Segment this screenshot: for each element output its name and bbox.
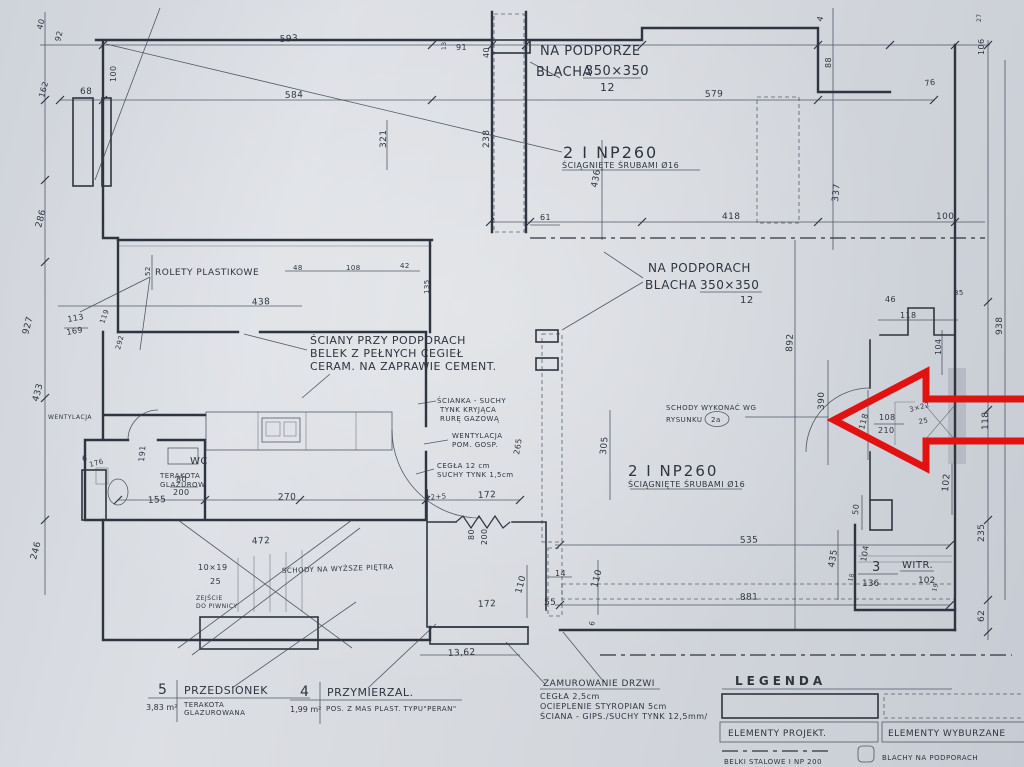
- dimension-label: 927: [21, 315, 35, 335]
- room-witryna-area: 136: [862, 579, 879, 589]
- dimension-label: 270: [278, 492, 297, 503]
- dimension-label: 68: [80, 87, 92, 97]
- legend-projected-label: ELEMENTY PROJEKT.: [728, 729, 827, 739]
- dimension-label: 162: [37, 80, 50, 98]
- legend-plate-symbol: [858, 746, 874, 762]
- legend-beams-label: BELKI STALOWE I NP 200: [724, 758, 822, 766]
- dimension-label: 52: [144, 266, 152, 276]
- note-scianka: RURĘ GAZOWĄ: [440, 415, 499, 423]
- dimension-label: 35: [954, 289, 964, 297]
- dimension-label: 108: [346, 264, 361, 272]
- note-na-podporze: NA PODPORZE: [540, 44, 641, 59]
- dimension-label: 390: [817, 392, 827, 410]
- dimension-label: 176: [88, 457, 104, 469]
- dimension-label: 80: [467, 529, 476, 540]
- dimension-label: 292: [114, 334, 125, 350]
- dimension-label: 235: [977, 524, 987, 542]
- dimension-label: 106: [977, 39, 986, 55]
- note-scianka: TYNK KRYJĄCA: [439, 406, 496, 414]
- dimension-label: 535: [740, 535, 759, 546]
- note-wentylacja-left: WENTYLACJA: [48, 414, 92, 421]
- dimension-label: 91: [456, 43, 467, 52]
- dimension-label: 13: [441, 42, 448, 50]
- note-stopnie: 25: [210, 577, 221, 586]
- dimension-label: 246: [29, 540, 43, 560]
- dimension-label: 265: [512, 438, 524, 456]
- dimension-label: 48: [293, 264, 303, 272]
- dimension-label: 62: [977, 610, 987, 622]
- dimension-label: 14: [555, 569, 566, 578]
- note-sciany: BELEK Z PEŁNYCH CEGIEŁ: [310, 347, 464, 360]
- dimension-label: 104: [859, 545, 871, 563]
- note-schody-wykonac: RYSUNKU: [666, 416, 703, 424]
- room-przedsionek-name: PRZEDSIONEK: [184, 684, 268, 697]
- room-witryna-dim: 102: [918, 576, 935, 586]
- dimension-label: 88: [824, 57, 833, 68]
- note-schody-pietra: SCHODY NA WYŻSZE PIĘTRA: [282, 562, 394, 575]
- note-zejscie: DO PIWNICY: [196, 603, 238, 610]
- dimension-label: 61: [540, 213, 551, 222]
- dimension-label: 155: [148, 495, 167, 506]
- note-na-podporach: BLACHA: [645, 278, 697, 292]
- note-scianka: ŚCIANKA - SUCHY: [437, 396, 506, 405]
- note-schody-wykonac: SCHODY WYKONAĆ WG: [666, 403, 756, 412]
- note-na-podporze: 12: [600, 81, 615, 94]
- dimension-label: 110: [514, 574, 528, 594]
- note-na-podporze: 350×350: [585, 64, 649, 79]
- dimension-label: 169: [66, 325, 84, 337]
- dimension-label: 12+5: [425, 492, 446, 502]
- dimension-lines-layer: [40, 8, 1005, 724]
- door-arcs-layer: [128, 388, 955, 518]
- note-na-podporach: 12: [740, 295, 754, 306]
- note-wentylacja-pom: POM. GOSP.: [452, 441, 498, 449]
- dimension-label: 76: [924, 78, 936, 88]
- dimension-label: 892: [785, 333, 796, 352]
- walls-layer: [85, 12, 955, 640]
- dimension-label: 436: [590, 169, 603, 189]
- dimension-label: 55: [544, 598, 556, 608]
- room-witryna-number: 3: [872, 560, 880, 575]
- dimension-label: 25: [918, 416, 929, 426]
- room-przedsionek-finish: GLAZUROWANA: [184, 709, 245, 717]
- dimension-label: 104: [934, 339, 943, 355]
- note-zamurowanie: ŚCIANA - GIPS./SUCHY TYNK 12,5mm/: [540, 710, 708, 721]
- note-zamurowanie: ZAMUROWANIE DRZWI: [543, 679, 655, 689]
- dimension-label: 40: [482, 47, 491, 58]
- note-zejscie: ZEJŚCIE: [196, 595, 223, 602]
- dimension-label: 200: [173, 488, 189, 497]
- legend: LEGENDA ELEMENTY PROJEKT. ELEMENTY WYBUR…: [720, 674, 1024, 766]
- legend-swatch-demolished: [884, 694, 1024, 718]
- dimension-label: 4: [815, 15, 825, 23]
- note-rolety: ROLETY PLASTIKOWE: [155, 268, 259, 278]
- dimension-label: 119: [98, 308, 110, 324]
- room-przymierzalnia-area: 1,99 m²: [290, 705, 321, 714]
- note-sciany: CERAM. NA ZAPRAWIE CEMENT.: [310, 360, 497, 373]
- room-przymierzalnia-number: 4: [300, 684, 309, 700]
- dimension-label: 938: [995, 317, 1005, 335]
- dimension-label: 102: [941, 473, 953, 492]
- dimension-label: 418: [722, 212, 740, 222]
- dimension-label: 593: [280, 34, 299, 45]
- dimension-label: 135: [423, 279, 431, 294]
- dimension-label: 46: [885, 295, 896, 304]
- note-zamurowanie: OCIEPLENIE STYROPIAN 5cm: [540, 702, 667, 711]
- dimension-label: 286: [34, 208, 48, 228]
- note-beam-top: 2 I NP260: [563, 143, 658, 162]
- dimension-label: 27: [976, 14, 983, 22]
- dimension-label: 881: [740, 592, 759, 603]
- note-stopnie: 10×19: [198, 563, 228, 572]
- dimension-label: 118: [900, 311, 916, 320]
- note-beam-mid: 2 I NP260: [628, 462, 718, 480]
- dimension-label: 13,62: [448, 648, 476, 659]
- room-przymierzalnia-name: PRZYMIERZAL.: [327, 686, 414, 699]
- legend-swatch-projected: [722, 694, 878, 718]
- room-przedsionek-finish: TERAKOTA: [183, 701, 224, 709]
- room-przedsionek-area: 3,83 m²: [146, 703, 177, 712]
- legend-demolished-label: ELEMENTY WYBURZANE: [888, 729, 1006, 739]
- dimension-label: 3×22: [908, 401, 930, 414]
- room-przedsionek-number: 5: [158, 682, 167, 698]
- note-wc: GLAZUROW.: [160, 481, 207, 489]
- dimension-label: 337: [831, 183, 843, 202]
- room-przymierzalnia-finish: POS. Z MAS PLAST. TYPU"PERAN": [326, 705, 457, 713]
- dimension-label: 210: [878, 426, 894, 435]
- dimension-label: 305: [599, 436, 611, 455]
- dimension-label: 42: [400, 262, 410, 270]
- scanned-floor-plan: 5935849113405797668409216210048827106286…: [0, 0, 1024, 767]
- dimension-label: 172: [478, 490, 497, 501]
- dimension-label: 584: [285, 90, 304, 101]
- note-na-podporze: BLACHA: [536, 65, 592, 80]
- dimension-label: 191: [137, 445, 147, 462]
- room-witryna-name: WITR.: [902, 560, 933, 571]
- dimension-label: 118: [981, 412, 991, 430]
- dimension-label: 110: [590, 568, 604, 588]
- note-zamurowanie: CEGŁA 2,5cm: [540, 692, 600, 701]
- note-sciany: ŚCIANY PRZY PODPORACH: [310, 334, 466, 347]
- dimension-label: 472: [252, 536, 271, 547]
- note-beam-top: ŚCIĄGNIĘTE ŚRUBAMI Ø16: [562, 159, 679, 170]
- dimension-label: 321: [379, 130, 389, 148]
- note-wentylacja-pom: WENTYLACJA: [452, 432, 502, 440]
- dimension-label: 200: [480, 529, 489, 545]
- dimension-label: 100: [936, 212, 954, 222]
- dimension-label: 113: [67, 312, 85, 324]
- dimension-label: 100: [109, 66, 118, 82]
- dimension-labels-layer: 5935849113405797668409216210048827106286…: [21, 14, 1005, 659]
- note-na-podporach: 350×350: [700, 278, 759, 292]
- dimension-label: 108: [879, 413, 895, 422]
- note-cegla: CEGŁA 12 cm: [437, 462, 490, 470]
- legend-plates-label: BLACHY NA PODPORACH: [882, 754, 978, 762]
- floor-plan-svg: 5935849113405797668409216210048827106286…: [0, 0, 1024, 767]
- dimension-label: 579: [705, 89, 724, 100]
- dimension-label: 92: [53, 30, 65, 43]
- demolished-elements-layer: [494, 14, 966, 616]
- note-wc: WC: [190, 456, 208, 467]
- note-schody-wykonac: 2a: [711, 416, 721, 424]
- dimension-label: 6: [588, 620, 597, 626]
- legend-title: LEGENDA: [735, 674, 826, 688]
- note-wc: TERAKOTA: [159, 472, 200, 480]
- note-na-podporach: NA PODPORACH: [648, 261, 751, 275]
- note-beam-mid: ŚCIĄGNIĘTE ŚRUBAMI Ø16: [628, 478, 745, 489]
- dimension-label: 6: [82, 454, 88, 463]
- dimension-label: 438: [252, 297, 271, 308]
- dimension-label: 238: [482, 130, 492, 148]
- note-cegla: SUCHY TYNK 1,5cm: [437, 471, 514, 479]
- dimension-label: 172: [478, 599, 497, 610]
- dimension-label: 50: [851, 503, 861, 515]
